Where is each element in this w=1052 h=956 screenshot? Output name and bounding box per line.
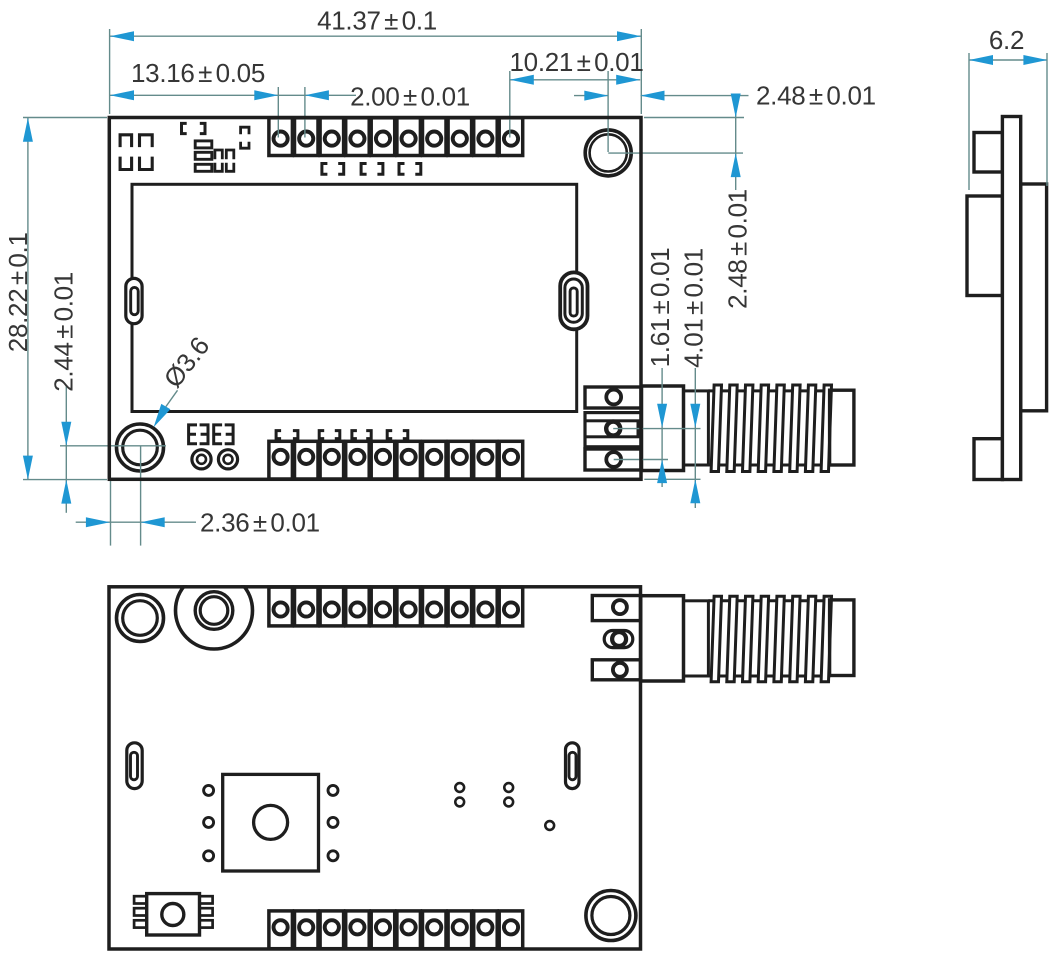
svg-text:28.22±0.1: 28.22±0.1 bbox=[3, 232, 33, 352]
svg-text:1.61±0.01: 1.61±0.01 bbox=[645, 248, 675, 368]
svg-text:6.2: 6.2 bbox=[989, 25, 1024, 55]
svg-text:2.44±0.01: 2.44±0.01 bbox=[49, 272, 79, 392]
svg-text:2.00±0.01: 2.00±0.01 bbox=[350, 81, 470, 111]
svg-text:13.16±0.05: 13.16±0.05 bbox=[131, 58, 265, 88]
svg-text:2.48±0.01: 2.48±0.01 bbox=[723, 189, 753, 309]
svg-text:2.36±0.01: 2.36±0.01 bbox=[200, 508, 320, 538]
svg-text:41.37±0.1: 41.37±0.1 bbox=[317, 6, 437, 36]
svg-text:2.48±0.01: 2.48±0.01 bbox=[756, 81, 876, 111]
svg-text:4.01±0.01: 4.01±0.01 bbox=[679, 248, 709, 368]
svg-text:10.21±0.01: 10.21±0.01 bbox=[510, 47, 644, 77]
